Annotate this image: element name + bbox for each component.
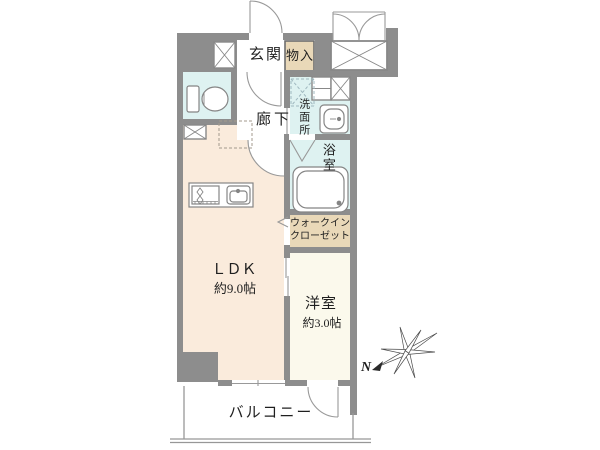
room-size-ldk: 約9.0帖 (214, 282, 256, 296)
pipe-shaft-box-washroom (331, 77, 350, 100)
north-arrow-icon (372, 361, 383, 371)
room-label-walk-in-closet-line2: クローゼット (290, 232, 350, 243)
bathtub-icon (293, 167, 348, 212)
pipe-shaft-box-entrance (214, 42, 235, 68)
entrance-door-arc (250, 1, 282, 33)
room-label-washroom: 洗面所 (297, 98, 309, 137)
washbasin-icon (320, 105, 348, 133)
room-label-storage: 物入 (286, 49, 314, 63)
room-size-western-room: 約3.0帖 (302, 317, 341, 330)
room-label-western-room: 洋室 (305, 297, 337, 313)
elevator-shaft-box (331, 41, 387, 70)
room-label-ldk: ＬＤＫ (211, 263, 256, 279)
compass-north-label: N (361, 361, 371, 376)
kitchen-counter-icon (189, 183, 253, 207)
room-label-hallway: 廊下 (256, 113, 292, 129)
room-label-balcony: バルコニー (229, 406, 314, 422)
room-label-entrance: 玄関 (249, 48, 283, 64)
room-label-bathroom: 浴室 (321, 143, 335, 173)
room-label-walk-in-closet-line1: ウォークイン (290, 219, 350, 230)
floor-plan-page: 玄関 物入 廊下 洗面所 浴室 ウォークイン クローゼット ＬＤＫ 約9.0帖 … (0, 0, 600, 450)
compass-rose-icon (372, 327, 437, 378)
pipe-shaft-box-kitchen (184, 125, 206, 139)
meter-box (312, 77, 331, 100)
toilet-fixture-icon (187, 86, 228, 112)
double-door-arcs (333, 12, 385, 40)
